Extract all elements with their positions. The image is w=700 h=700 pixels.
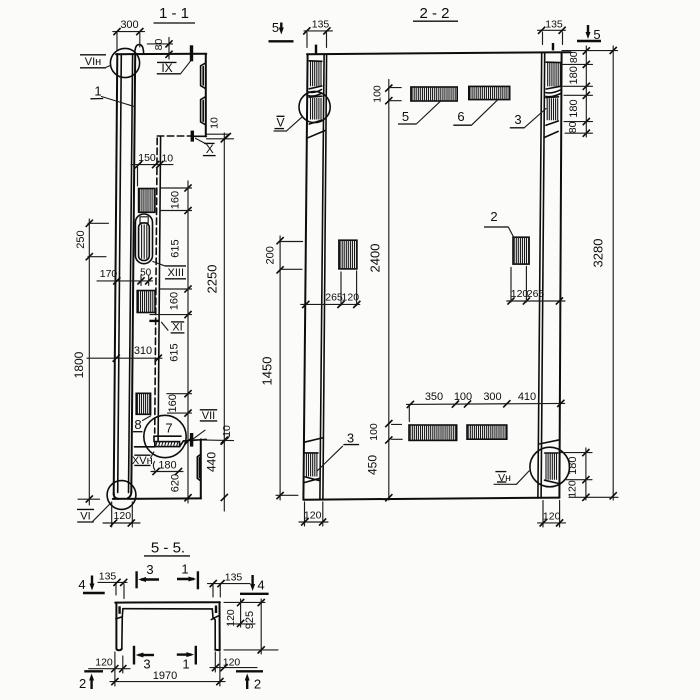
svg-text:1450: 1450	[259, 357, 274, 386]
svg-text:VI: VI	[80, 511, 90, 523]
svg-text:120: 120	[567, 480, 579, 498]
svg-text:120: 120	[543, 510, 561, 522]
svg-text:100: 100	[368, 423, 380, 441]
svg-text:250: 250	[75, 230, 87, 248]
svg-text:120: 120	[95, 657, 113, 669]
svg-text:1 - 1: 1 - 1	[159, 5, 189, 22]
svg-text:180: 180	[568, 66, 580, 84]
svg-text:180: 180	[568, 99, 580, 117]
svg-text:100: 100	[372, 85, 384, 103]
svg-text:3: 3	[514, 112, 521, 127]
svg-text:3280: 3280	[591, 239, 606, 268]
svg-text:180: 180	[158, 460, 176, 472]
svg-text:10: 10	[209, 117, 221, 129]
svg-text:100: 100	[454, 391, 472, 403]
svg-text:80: 80	[567, 121, 579, 133]
svg-text:50: 50	[140, 268, 152, 279]
svg-text:300: 300	[483, 391, 501, 403]
svg-text:5 - 5.: 5 - 5.	[151, 540, 185, 557]
svg-text:120: 120	[304, 510, 322, 522]
svg-text:265: 265	[527, 288, 545, 300]
svg-text:VIн: VIн	[85, 56, 101, 68]
svg-text:120: 120	[114, 510, 132, 522]
svg-text:265: 265	[325, 291, 343, 303]
svg-text:3: 3	[143, 657, 150, 672]
svg-text:2: 2	[490, 209, 497, 224]
svg-text:1970: 1970	[153, 670, 177, 682]
svg-text:1: 1	[181, 562, 188, 577]
svg-text:310: 310	[134, 345, 152, 357]
svg-text:135: 135	[225, 572, 243, 584]
svg-text:200: 200	[265, 246, 277, 264]
svg-text:4: 4	[78, 577, 85, 592]
svg-text:135: 135	[99, 571, 117, 583]
svg-text:6: 6	[457, 109, 464, 124]
svg-text:160: 160	[167, 394, 179, 412]
svg-text:V: V	[276, 116, 284, 130]
svg-text:5: 5	[593, 27, 600, 42]
svg-text:160: 160	[169, 292, 181, 310]
svg-text:620: 620	[170, 474, 182, 492]
svg-text:180: 180	[567, 457, 579, 475]
svg-text:3: 3	[146, 562, 153, 577]
svg-text:170: 170	[100, 268, 118, 280]
svg-text:160: 160	[170, 191, 182, 209]
svg-text:440: 440	[205, 452, 219, 472]
svg-text:135: 135	[545, 19, 563, 31]
svg-text:2: 2	[254, 677, 261, 692]
svg-text:7: 7	[165, 421, 172, 436]
svg-text:5: 5	[402, 109, 409, 124]
svg-text:XIII: XIII	[168, 267, 185, 279]
svg-text:925: 925	[244, 611, 256, 629]
svg-text:615: 615	[168, 343, 180, 361]
svg-text:5: 5	[272, 20, 279, 35]
svg-text:2250: 2250	[205, 265, 220, 294]
svg-text:VII: VII	[202, 410, 215, 422]
svg-text:10: 10	[221, 425, 233, 437]
svg-text:8: 8	[134, 417, 141, 432]
svg-text:1: 1	[182, 657, 189, 672]
svg-text:135: 135	[312, 19, 330, 31]
svg-text:1: 1	[94, 84, 101, 99]
svg-text:2 - 2: 2 - 2	[419, 5, 449, 22]
svg-text:80: 80	[568, 51, 580, 63]
svg-text:2: 2	[79, 676, 86, 691]
svg-text:450: 450	[366, 455, 380, 475]
svg-text:4: 4	[257, 578, 264, 593]
svg-text:3: 3	[347, 431, 354, 446]
svg-text:350: 350	[425, 391, 443, 403]
svg-text:10: 10	[161, 153, 173, 165]
svg-text:XI: XI	[172, 322, 182, 334]
svg-text:300: 300	[120, 19, 138, 31]
svg-text:2400: 2400	[368, 244, 383, 273]
svg-text:1800: 1800	[72, 351, 86, 378]
svg-text:410: 410	[518, 391, 536, 403]
svg-text:615: 615	[170, 239, 182, 257]
svg-text:IX: IX	[161, 61, 172, 75]
svg-text:80: 80	[153, 39, 165, 51]
svg-text:150: 150	[138, 152, 156, 164]
